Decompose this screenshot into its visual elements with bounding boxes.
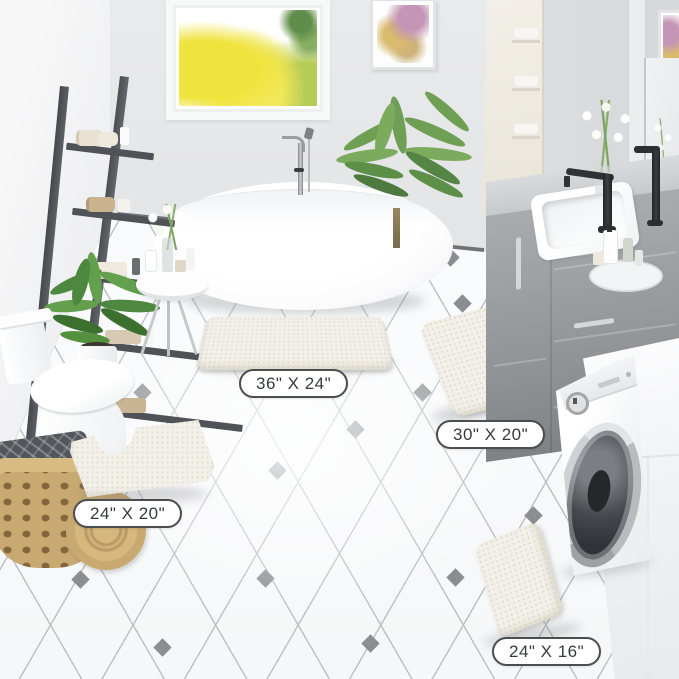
size-label-text: 36" X 24" (256, 374, 331, 393)
hand-shower-rod (308, 134, 310, 192)
window-scene (179, 10, 317, 106)
rolled-towel (98, 132, 118, 146)
tray-jar (593, 252, 604, 265)
drawer-seam (554, 323, 676, 342)
wall-art-print (377, 5, 429, 63)
soap-pump-bottle (603, 230, 618, 264)
table-vase (162, 238, 173, 272)
drawer-handle (574, 318, 614, 329)
counter-flower-cluster (572, 100, 640, 172)
tub-faucet-handle (294, 168, 304, 172)
rolled-towel (86, 197, 115, 212)
panel-shelf-line (512, 40, 540, 43)
second-faucet-body (652, 150, 660, 224)
size-label-36x24: 36" X 24" (239, 369, 348, 398)
table-bottle (186, 248, 195, 270)
palm-trunk (393, 208, 400, 248)
size-label-24x20: 24" X 20" (73, 499, 182, 528)
table-bottle (145, 250, 157, 272)
cabinet-seam (647, 458, 649, 678)
size-label-text: 24" X 20" (90, 504, 165, 523)
size-label-text: 30" X 20" (453, 425, 528, 444)
sink-faucet-body (603, 174, 612, 230)
shelf-towels (514, 124, 538, 134)
shelf-towels (514, 76, 538, 86)
size-label-30x20: 30" X 20" (436, 420, 545, 449)
bathroom-product-photo: 36" X 24" 30" X 20" 24" X 20" 24" X 16" (0, 0, 679, 679)
side-table-top (136, 268, 208, 301)
drawer-seam (494, 358, 546, 367)
soap-pump-top (607, 223, 612, 232)
window (166, 0, 330, 120)
panel-shelf-line (512, 88, 540, 91)
table-jar (175, 260, 186, 272)
side-table-leg (167, 294, 170, 356)
shelf-bottle (120, 127, 129, 145)
second-faucet-base (647, 220, 663, 226)
panel-shelf-line (512, 136, 540, 139)
shelf-bottle (132, 258, 140, 275)
washer-button (626, 372, 631, 377)
washer-dial-notch (573, 398, 577, 404)
wall-art-frame (370, 0, 436, 70)
bath-rug-36x24 (196, 317, 394, 370)
shelf-towels (514, 28, 538, 38)
tray-bottle-green (623, 238, 633, 262)
size-label-24x16: 24" X 16" (492, 637, 601, 666)
shelf-jar (118, 199, 130, 212)
sink-faucet-spout (564, 176, 570, 187)
tray-bottle (635, 250, 643, 266)
washer-dial (566, 392, 589, 415)
size-label-text: 24" X 16" (509, 642, 584, 661)
door-handle (516, 237, 521, 290)
